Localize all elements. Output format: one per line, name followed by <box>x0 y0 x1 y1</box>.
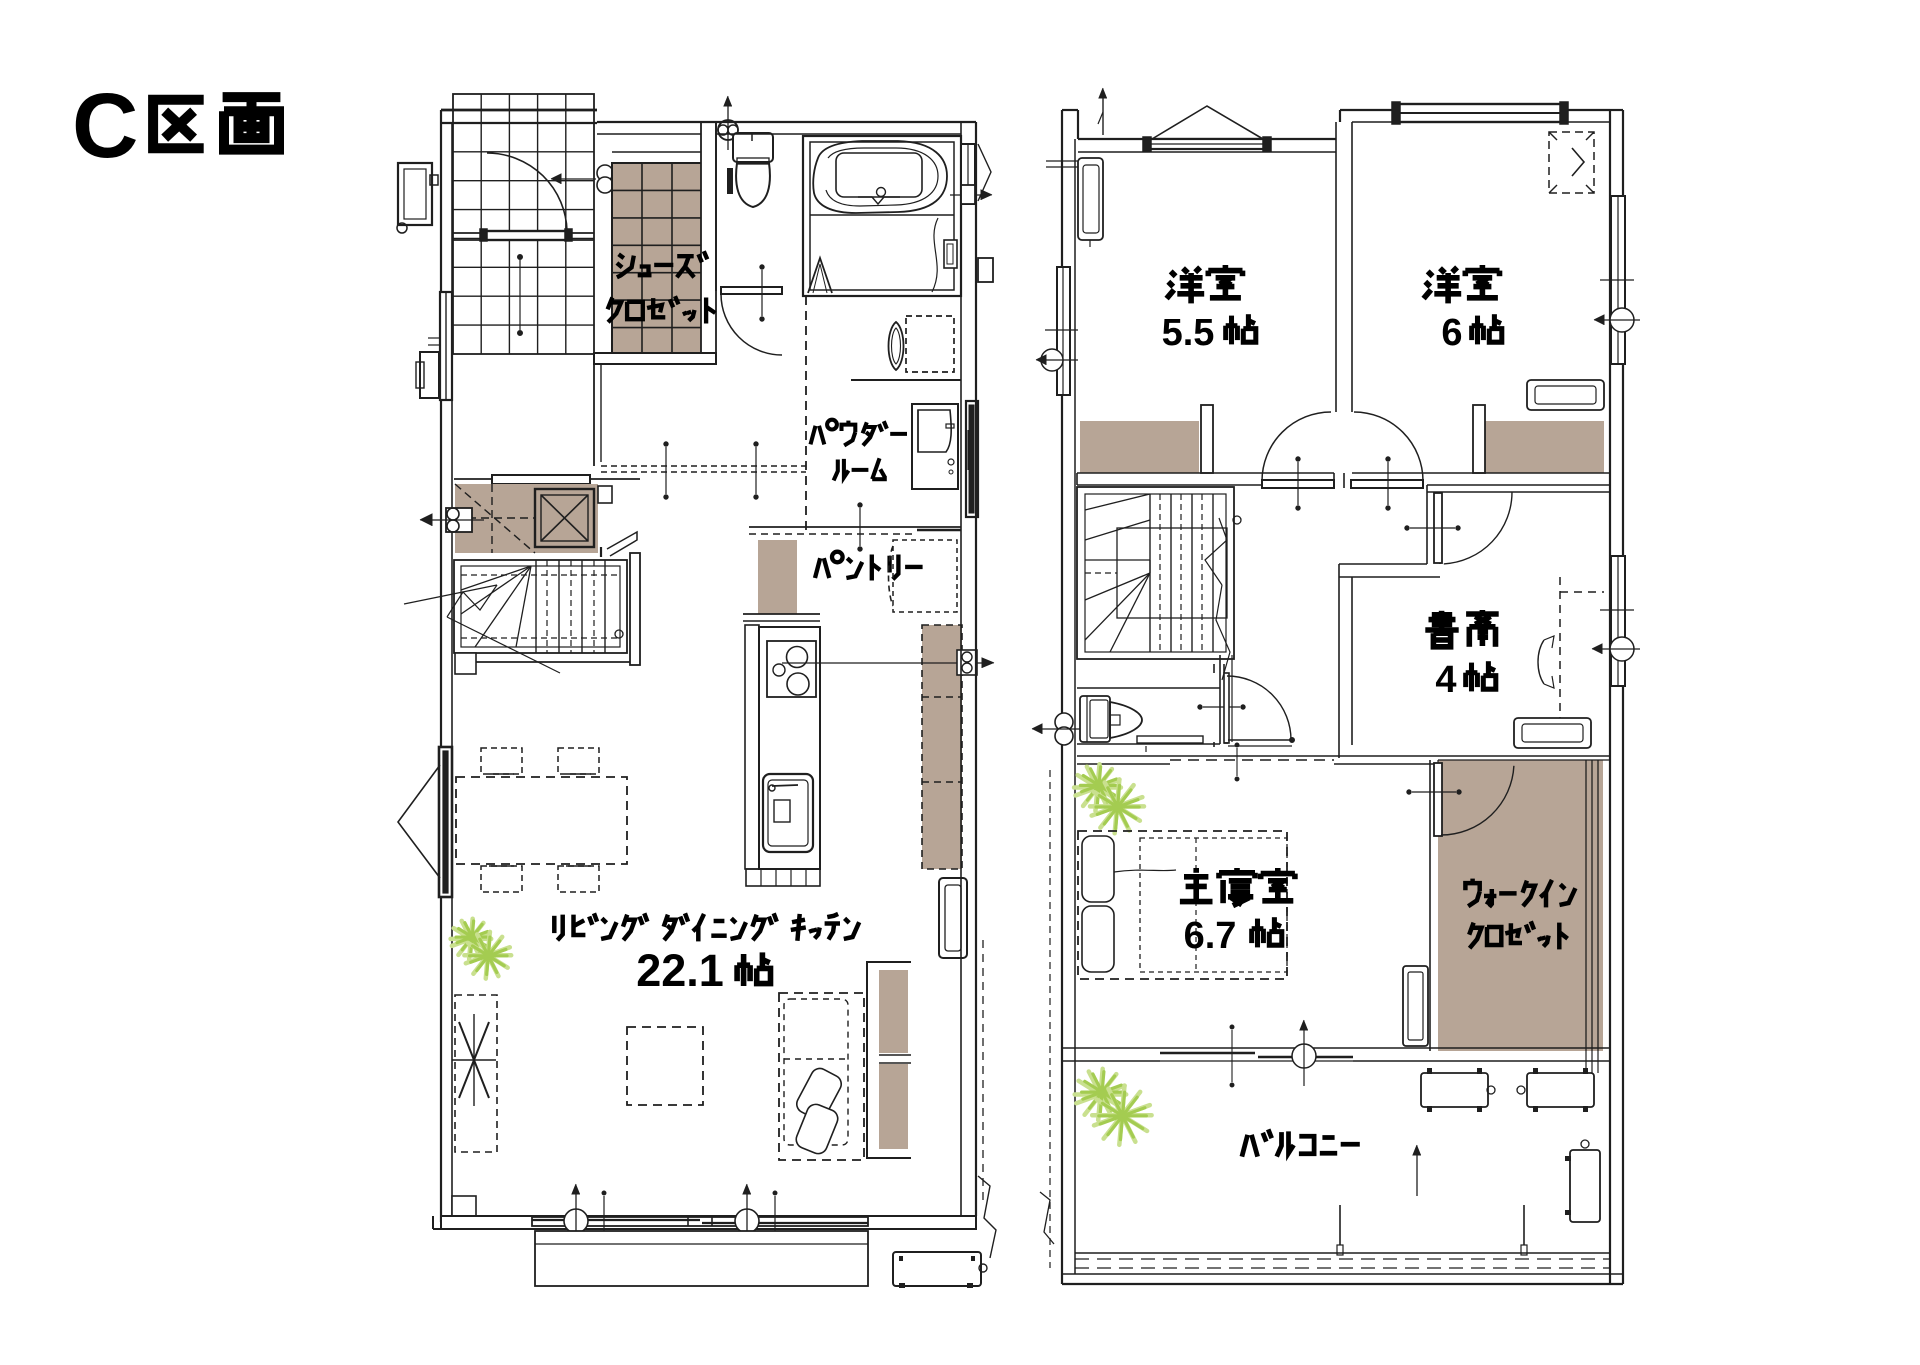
svg-text:6: 6 <box>1441 312 1462 354</box>
svg-text:C: C <box>72 75 138 177</box>
svg-text:5.5: 5.5 <box>1162 312 1215 354</box>
svg-text:4: 4 <box>1435 659 1456 701</box>
svg-text:6.7: 6.7 <box>1184 915 1237 957</box>
svg-text:22.1: 22.1 <box>636 945 724 996</box>
